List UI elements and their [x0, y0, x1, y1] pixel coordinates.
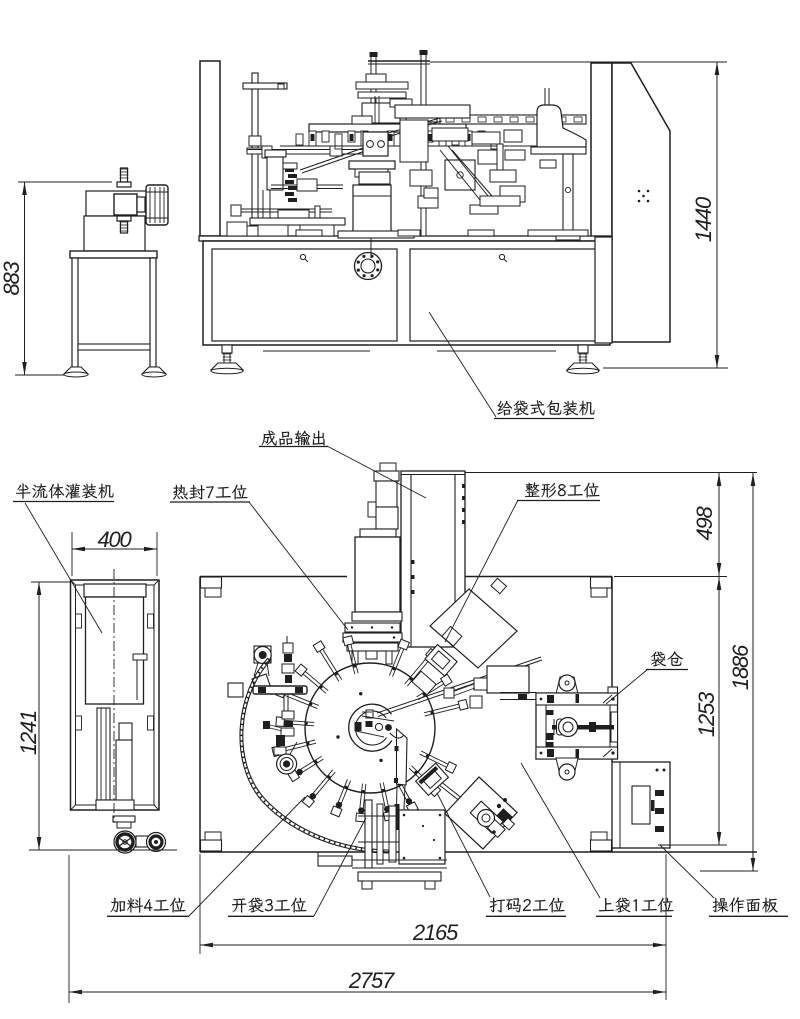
svg-text:2757: 2757	[348, 968, 395, 993]
svg-text:1241: 1241	[16, 711, 41, 755]
svg-text:498: 498	[692, 505, 717, 540]
svg-text:1253: 1253	[694, 691, 719, 737]
svg-text:400: 400	[97, 527, 132, 552]
svg-text:883: 883	[0, 260, 24, 295]
svg-text:2165: 2165	[412, 920, 459, 945]
svg-text:1886: 1886	[728, 644, 753, 690]
svg-text:1440: 1440	[691, 196, 716, 242]
